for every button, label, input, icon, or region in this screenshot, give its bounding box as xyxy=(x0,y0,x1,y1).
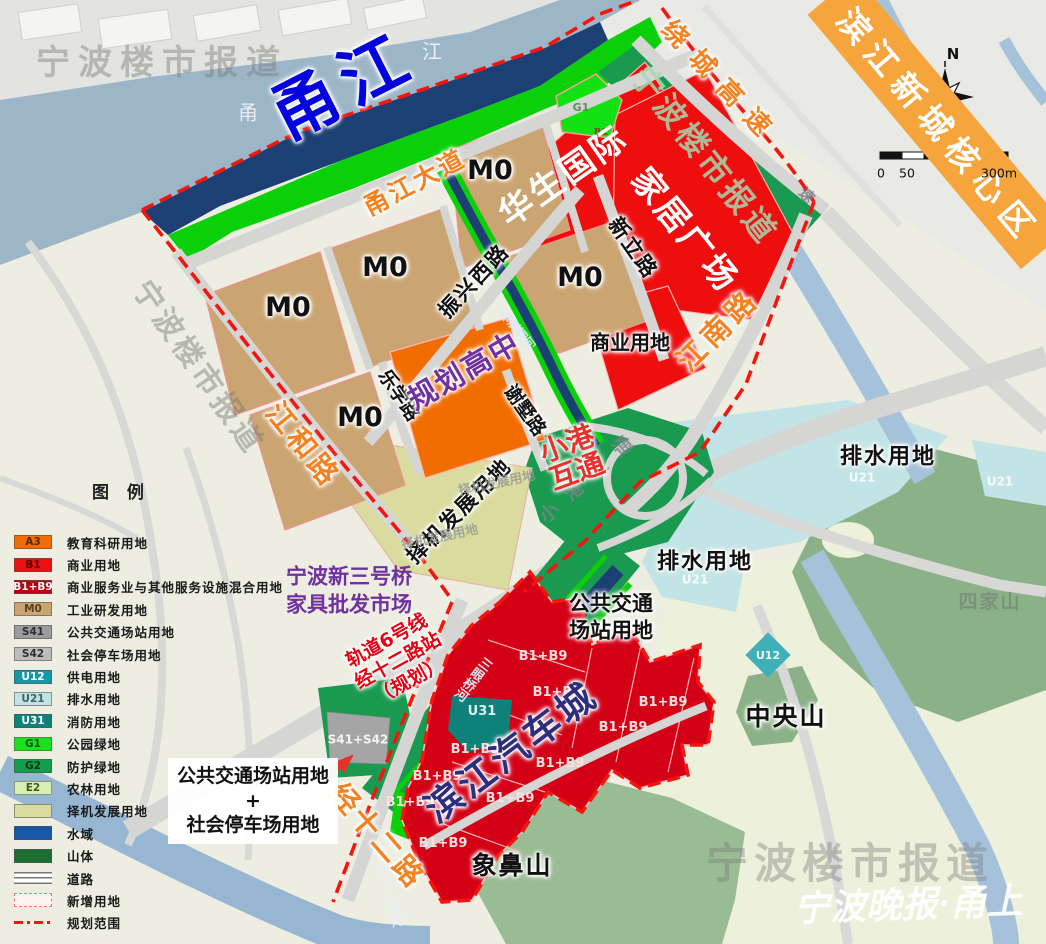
legend-label: 规划范围 xyxy=(67,913,121,932)
zone-b1b9: B1+B9 xyxy=(536,757,585,771)
legend-item: 规划范围 xyxy=(14,912,314,934)
legend-label: 商业用地 xyxy=(67,555,121,574)
label-sijiashan: 四家山 xyxy=(958,593,1021,613)
label-paishui: 排水用地 xyxy=(840,445,936,468)
legend-label: 消防用地 xyxy=(67,712,121,731)
legend-title: 图 例 xyxy=(92,478,314,503)
zone-u21: U21 xyxy=(849,472,875,485)
legend-item: 山体 xyxy=(14,844,314,866)
legend-swatch xyxy=(14,826,52,840)
zone-b1b9: B1+B9 xyxy=(519,650,568,664)
legend-label: 排水用地 xyxy=(67,689,121,708)
legend-swatch: U12 xyxy=(14,670,52,684)
label-zhongyangshan: 中央山 xyxy=(745,704,826,730)
zone-u21: U21 xyxy=(682,574,708,587)
legend-swatch: U21 xyxy=(14,692,52,706)
zone-s41s42: S41+S42 xyxy=(328,734,389,747)
zone-m0: M0 xyxy=(557,264,603,292)
legend-swatch: B1+B9 xyxy=(14,580,52,594)
legend-item: S41公共交通场站用地 xyxy=(14,621,314,643)
legend: 图 例 A3教育科研用地B1商业用地B1+B9商业服务业与其他服务设施混合用地M… xyxy=(14,478,314,934)
legend-label: 择机发展用地 xyxy=(67,801,148,820)
legend-swatch xyxy=(14,804,52,818)
zone-g1: G1 xyxy=(573,102,590,114)
watermark-brand: 宁波楼市报道 xyxy=(706,842,994,886)
legend-item: 道路 xyxy=(14,867,314,889)
label-transit-yard: 公共交通 场站用地 xyxy=(569,591,653,646)
zone-u21: U21 xyxy=(987,476,1013,489)
legend-label: 公共交通场站用地 xyxy=(67,622,175,641)
label-paishui: 排水用地 xyxy=(657,550,753,573)
zone-m0: M0 xyxy=(265,294,311,322)
zone-b1b9: B1+B9 xyxy=(599,721,648,735)
watermark-signature: 宁波晚报·甬上 xyxy=(793,883,1023,929)
legend-swatch: G1 xyxy=(14,737,52,751)
legend-item: B1商业用地 xyxy=(14,553,314,575)
zone-b1b9: B1+B9 xyxy=(486,792,535,806)
legend-swatch: U31 xyxy=(14,714,52,728)
legend-swatch xyxy=(14,893,52,907)
zone-m0: M0 xyxy=(467,157,513,185)
zone-m0: M0 xyxy=(362,254,408,282)
legend-items: A3教育科研用地B1商业用地B1+B9商业服务业与其他服务设施混合用地M0工业研… xyxy=(14,531,314,934)
legend-item: G1公园绿地 xyxy=(14,733,314,755)
planning-map: 宁波楼市报道 宁波楼市报道 宁波楼市报道 宁波楼市报道 宁波晚报·甬上 甬江 甬… xyxy=(0,0,1046,944)
legend-label: 教育科研用地 xyxy=(67,533,148,552)
legend-item: S42社会停车场用地 xyxy=(14,643,314,665)
legend-swatch: A3 xyxy=(14,535,52,549)
legend-label: 道路 xyxy=(67,869,94,888)
legend-item: G2防护绿地 xyxy=(14,755,314,777)
scale-zero: 0 xyxy=(877,166,885,179)
label-transit-line2: 场站用地 xyxy=(569,618,653,645)
legend-swatch: S41 xyxy=(14,625,52,639)
legend-label: 公园绿地 xyxy=(67,734,121,753)
river-char-jiang: 江 xyxy=(422,42,442,63)
river-char-yong: 甬 xyxy=(238,103,258,124)
legend-label: 供电用地 xyxy=(67,667,121,686)
legend-label: 社会停车场用地 xyxy=(67,645,162,664)
legend-item: U31消防用地 xyxy=(14,710,314,732)
legend-item: U12供电用地 xyxy=(14,665,314,687)
legend-swatch: S42 xyxy=(14,647,52,661)
zone-m0: M0 xyxy=(337,404,383,432)
legend-swatch: B1 xyxy=(14,558,52,572)
legend-swatch xyxy=(14,849,52,863)
legend-label: 水域 xyxy=(67,824,94,843)
legend-item: 水域 xyxy=(14,822,314,844)
scale-max: 300m xyxy=(981,166,1017,179)
zone-u31: U31 xyxy=(468,705,497,719)
legend-item: 择机发展用地 xyxy=(14,800,314,822)
compass-north-label: N xyxy=(947,47,960,63)
legend-swatch: G2 xyxy=(14,759,52,773)
legend-item: U21排水用地 xyxy=(14,688,314,710)
legend-swatch xyxy=(14,921,52,924)
scale-fifty: 50 xyxy=(899,166,915,179)
legend-label: 新增用地 xyxy=(67,891,121,910)
legend-item: M0工业研发用地 xyxy=(14,598,314,620)
label-transit-line1: 公共交通 xyxy=(569,591,653,618)
label-shangye: 商业用地 xyxy=(590,333,670,354)
legend-item: E2农林用地 xyxy=(14,777,314,799)
label-xiangbishan: 象鼻山 xyxy=(471,853,552,879)
legend-item: A3教育科研用地 xyxy=(14,531,314,553)
legend-label: 山体 xyxy=(67,846,94,865)
legend-label: 工业研发用地 xyxy=(67,600,148,619)
zone-u12: U12 xyxy=(756,650,780,662)
legend-label: 商业服务业与其他服务设施混合用地 xyxy=(67,577,283,596)
watermark-brand: 宁波楼市报道 xyxy=(36,46,288,82)
legend-item: B1+B9商业服务业与其他服务设施混合用地 xyxy=(14,576,314,598)
legend-item: 新增用地 xyxy=(14,889,314,911)
legend-swatch: E2 xyxy=(14,781,52,795)
legend-swatch xyxy=(14,872,52,884)
legend-label: 防护绿地 xyxy=(67,757,121,776)
zone-b1b9: B1+B9 xyxy=(419,837,468,851)
legend-label: 农林用地 xyxy=(67,779,121,798)
legend-swatch: M0 xyxy=(14,602,52,616)
zone-b1b9: B1+B9 xyxy=(639,696,688,710)
